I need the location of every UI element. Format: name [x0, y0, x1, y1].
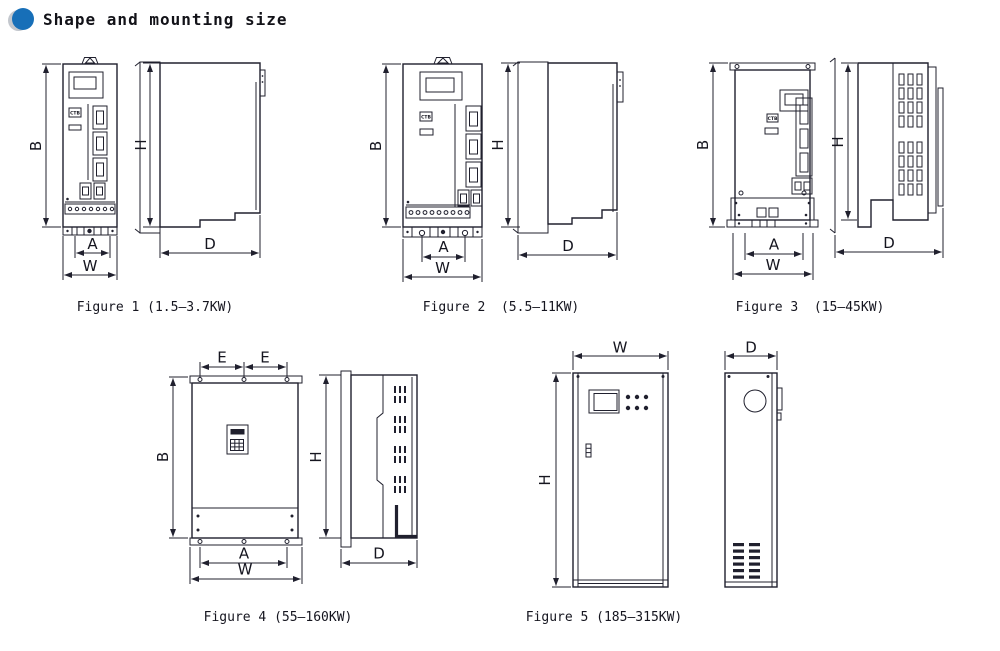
terminal-strip: [65, 202, 115, 214]
dim-label-b: B: [370, 141, 385, 151]
terminal-strip: [406, 205, 470, 218]
dim-label-d: D: [883, 234, 895, 252]
figure-1-side-view: H D: [132, 62, 265, 258]
mounting-plate: [518, 62, 548, 233]
dim-label-d: D: [373, 545, 385, 563]
dim-label-h: H: [536, 474, 554, 485]
dim-label-a: A: [87, 235, 98, 253]
dim-label-a: A: [769, 236, 780, 254]
figure-1-drawing: CTB: [30, 52, 280, 297]
figure-2-drawing: CTB: [370, 52, 635, 297]
page: Shape and mounting size CTB: [0, 0, 1000, 651]
dim-label-h: H: [307, 451, 325, 462]
section-bullet-icon: [8, 7, 35, 31]
display-panel: [780, 90, 808, 111]
panel-label: CTB: [421, 115, 431, 121]
dim-label-d: D: [562, 237, 574, 255]
panel-label: CTB: [768, 116, 778, 122]
bottom-step: [397, 505, 418, 537]
side-body: [160, 63, 260, 227]
figure-5: W: [525, 340, 800, 602]
door-handle: [586, 444, 591, 457]
figure-1: CTB: [30, 52, 280, 297]
figure-3-drawing: CTB: [695, 50, 990, 305]
dim-label-e1: E: [217, 349, 226, 367]
figure-4-caption: Figure 4 (55–160KW): [178, 610, 378, 625]
keypad: [227, 425, 248, 454]
dim-label-w: W: [83, 257, 98, 275]
figure-2-caption: Figure 2 (5.5–11KW): [401, 300, 601, 315]
figure-5-side-view: D: [725, 340, 782, 587]
dim-label-w: W: [613, 340, 628, 357]
figure-5-drawing: W: [525, 340, 800, 602]
panel-label: CTB: [70, 111, 80, 117]
dim-label-b: B: [695, 140, 712, 150]
drive-body: [63, 64, 117, 227]
drive-body: [403, 64, 482, 227]
dim-label-b: B: [30, 141, 45, 151]
dim-label-h: H: [489, 139, 507, 150]
side-body: [725, 373, 777, 587]
dim-label-a: A: [438, 238, 449, 256]
side-body: [351, 375, 417, 538]
cabinet-body: [573, 373, 668, 587]
figure-5-front-view: W: [536, 340, 668, 587]
figure-3: CTB: [695, 50, 990, 305]
dim-label-e2: E: [260, 349, 269, 367]
figure-1-caption: Figure 1 (1.5–3.7KW): [55, 300, 255, 315]
figure-4-side-view: H D: [307, 371, 417, 568]
vent-grid: [899, 74, 922, 195]
mounting-feet: [63, 227, 117, 235]
dim-label-w: W: [435, 259, 450, 277]
figure-2: CTB: [370, 52, 635, 297]
dim-label-w: W: [766, 256, 781, 274]
dim-label-w: W: [238, 561, 253, 579]
section-header: Shape and mounting size: [8, 5, 288, 33]
connector-blocks: [792, 98, 812, 194]
figure-4-front-view: E E: [154, 349, 302, 585]
bottom-flange: [727, 220, 818, 227]
indicator-dots: [626, 395, 648, 410]
figure-3-caption: Figure 3 (15–45KW): [710, 300, 910, 315]
connector-blocks: [80, 106, 107, 199]
fan-circle: [744, 390, 766, 412]
figure-4-drawing: E E: [145, 340, 445, 602]
dim-label-h: H: [132, 139, 150, 150]
top-flange: [730, 63, 815, 70]
figure-2-front-view: CTB: [370, 58, 482, 283]
dim-label-b: B: [154, 452, 172, 462]
dim-label-d: D: [204, 235, 216, 253]
figure-5-caption: Figure 5 (185–315KW): [504, 610, 704, 625]
connector-blocks: [458, 106, 482, 206]
figure-3-front-view: CTB: [695, 63, 818, 280]
dim-label-h: H: [829, 136, 847, 147]
figure-1-front-view: CTB: [30, 58, 117, 281]
figure-4: E E: [145, 340, 445, 602]
dim-label-d: D: [745, 340, 757, 357]
figure-2-side-view: H D: [489, 62, 623, 260]
vent-grid: [394, 386, 406, 493]
hinge-tab: [777, 388, 782, 410]
lower-panel: [731, 198, 814, 220]
cabinet-body: [192, 383, 298, 538]
mounting-plate: [341, 371, 351, 547]
mounting-feet: [403, 227, 482, 237]
vent-slats: [733, 543, 760, 579]
page-title: Shape and mounting size: [43, 10, 288, 29]
figure-3-side-view: H D: [829, 58, 943, 258]
side-body: [548, 63, 617, 224]
